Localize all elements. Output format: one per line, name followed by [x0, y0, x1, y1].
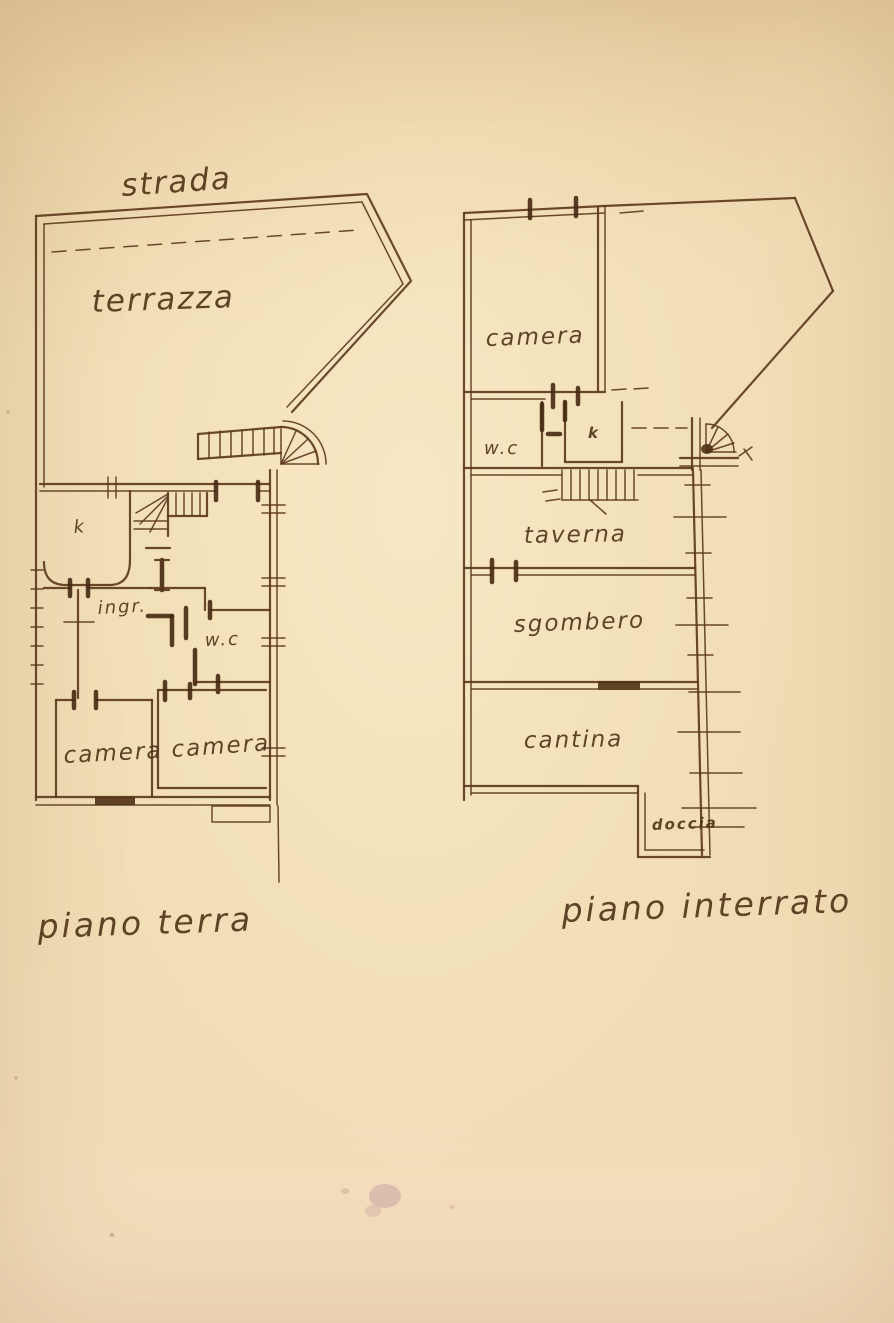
basement-window-ticks — [674, 485, 756, 827]
street-label: strada — [120, 160, 233, 204]
ground-floor-plan: strada terrazza — [31, 160, 411, 946]
basement-plan: camera w.c k — [464, 198, 853, 930]
tavern-label: taverna — [524, 521, 627, 549]
ground-floor-outer-walls — [36, 470, 279, 882]
bedroom-left-label: camera — [63, 738, 163, 769]
entrance-label: ingr. — [97, 595, 147, 619]
ground-floor-window-ticks — [262, 505, 285, 756]
tavern-room — [464, 560, 695, 582]
basement-outer-walls — [464, 198, 833, 855]
kitchen-label: k — [73, 516, 87, 538]
basement-wc-k-rooms — [542, 402, 622, 466]
basement-fan-stair — [680, 418, 752, 470]
cellar-room — [464, 786, 638, 793]
bedroom-right-label: camera — [171, 730, 271, 763]
basement-wc-label: w.c — [484, 438, 519, 459]
shower-label: doccia — [652, 814, 719, 834]
wc-label: w.c — [204, 629, 240, 651]
storage-room — [464, 681, 697, 690]
storage-label: sgombero — [513, 607, 645, 638]
paper-background: strada terrazza — [0, 0, 894, 1323]
basement-kitchen-label: k — [588, 424, 600, 442]
cellar-label: cantina — [524, 726, 624, 754]
terrace-label: terrazza — [91, 279, 235, 320]
ground-floor-caption: piano terra — [36, 899, 254, 946]
basement-bedroom-room — [464, 207, 648, 407]
basement-caption: piano interrato — [560, 881, 853, 930]
exterior-stair — [198, 421, 326, 464]
basement-stair — [464, 468, 693, 514]
interior-stair — [134, 493, 207, 590]
basement-bedroom-label: camera — [485, 323, 585, 352]
floor-plan-sketch: strada terrazza — [0, 0, 894, 1323]
kitchen-room — [44, 491, 130, 585]
